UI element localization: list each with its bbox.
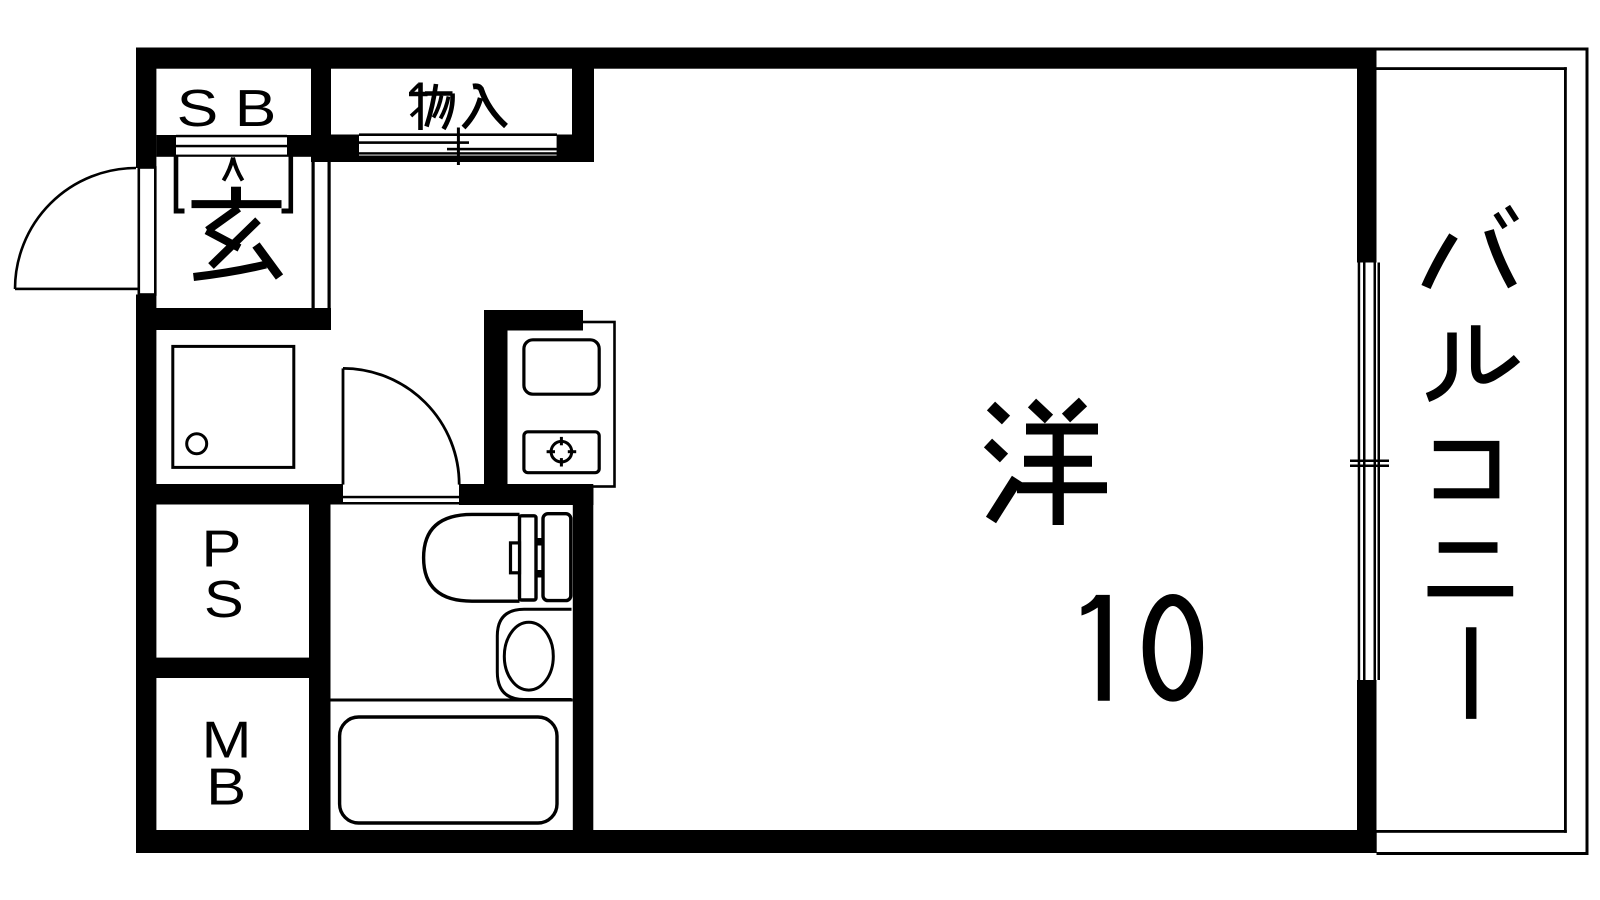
svg-text:B: B (235, 80, 277, 138)
svg-text:B: B (206, 757, 246, 815)
svg-text:S: S (204, 570, 244, 628)
svg-text:S: S (177, 80, 219, 138)
svg-text:P: P (202, 519, 242, 577)
